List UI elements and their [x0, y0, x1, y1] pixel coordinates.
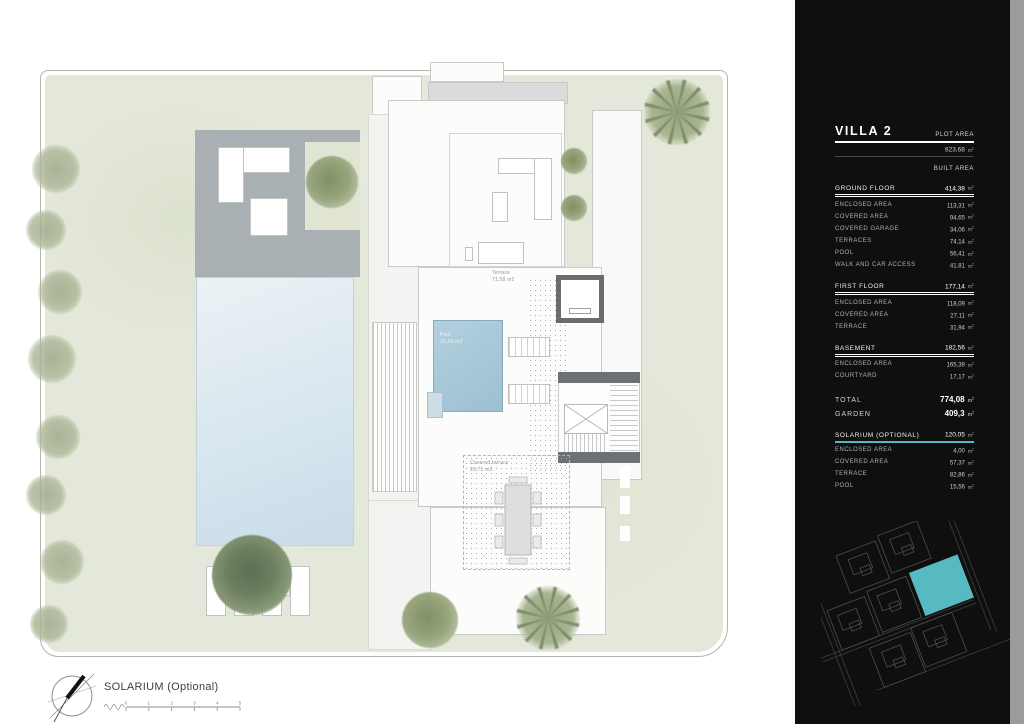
- row-value: 165,39m2: [947, 361, 974, 369]
- row-label: COVERED AREA: [835, 312, 888, 320]
- row-label: COVERED AREA: [835, 214, 888, 222]
- row-label: ENCLOSED AREA: [835, 447, 892, 455]
- scale-tick: 1: [148, 701, 151, 706]
- site-plan: Terrace 71,58 m2 Pool 15,56 m2: [40, 70, 728, 657]
- stair-treads: [610, 385, 638, 451]
- scale-tick: 3: [193, 701, 196, 706]
- shrub-icon: [30, 605, 68, 643]
- row-value: 41,81m2: [950, 262, 974, 270]
- row-label: COVERED GARAGE: [835, 226, 899, 234]
- ground-pool: [196, 277, 354, 546]
- pergola-label-title: Covered terrace: [470, 460, 509, 467]
- row-value: 56,41m2: [950, 250, 974, 258]
- pool-steps: [427, 392, 443, 418]
- area-row: ENCLOSED AREA4,00m2: [835, 447, 974, 455]
- garden-value: 409,3m2: [945, 409, 974, 418]
- section-value: 120,05m2: [945, 431, 974, 439]
- tree-icon: [561, 148, 587, 174]
- section-value: 177,14m2: [945, 283, 974, 291]
- scale-tick: 4: [216, 701, 219, 706]
- row-label: WALK AND CAR ACCESS: [835, 262, 916, 270]
- row-label: TERRACE: [835, 324, 867, 332]
- terrace-label-title: Terrace: [492, 270, 514, 277]
- page: Terrace 71,58 m2 Pool 15,56 m2: [0, 0, 1024, 724]
- terrace-label-area: 71,58 m2: [492, 277, 514, 284]
- villa-title: VILLA 2: [835, 124, 892, 138]
- tree-icon: [212, 535, 292, 615]
- scale-tick: 2: [170, 701, 173, 706]
- shrub-icon: [28, 335, 76, 383]
- pool-area-label: Pool 15,56 m2: [440, 332, 462, 346]
- sofa: [534, 158, 552, 220]
- row-value: 94,65m2: [950, 214, 974, 222]
- stair-void: [564, 404, 608, 434]
- area-row: COVERED AREA57,37m2: [835, 459, 974, 467]
- row-label: ENCLOSED AREA: [835, 300, 892, 308]
- section-first-floor: FIRST FLOOR 177,14m2 ENCLOSED AREA118,09…: [835, 283, 974, 332]
- info-panel: VILLA 2 PLOT AREA 823,68m2 BUILT AREA GR…: [795, 0, 1010, 724]
- shrub-icon: [26, 475, 66, 515]
- row-label: TERRACES: [835, 238, 872, 246]
- section-solarium: SOLARIUM (OPTIONAL) 120,05m2 ENCLOSED AR…: [835, 431, 974, 491]
- scale-tick: 5: [239, 701, 242, 706]
- sunbed: [508, 384, 550, 404]
- side-table: [465, 247, 473, 261]
- area-row: TERRACES74,14m2: [835, 238, 974, 246]
- row-label: ENCLOSED AREA: [835, 361, 892, 369]
- page-edge-strip: [1010, 0, 1024, 724]
- row-value: 34,06m2: [950, 226, 974, 234]
- garden-label: GARDEN: [835, 411, 871, 418]
- area-row: COURTYARD17,17m2: [835, 373, 974, 381]
- shrub-icon: [26, 210, 66, 250]
- stair-wall: [558, 372, 640, 383]
- pergola-label-area: 29,71 m2: [470, 467, 509, 474]
- louvre-deck: [372, 322, 417, 492]
- totals: TOTAL 774,08m2 GARDEN 409,3m2: [835, 395, 974, 418]
- area-row: ENCLOSED AREA113,31m2: [835, 202, 974, 210]
- total-value: 774,08m2: [940, 395, 974, 404]
- palm-tree-icon: [516, 586, 580, 650]
- row-value: 17,17m2: [950, 373, 974, 381]
- path-marker: [620, 496, 630, 514]
- area-row: WALK AND CAR ACCESS41,81m2: [835, 262, 974, 270]
- stair-treads: [564, 434, 608, 452]
- section-basement: BASEMENT 182,56m2 ENCLOSED AREA165,39m2 …: [835, 344, 974, 381]
- pool-label-title: Pool: [440, 332, 462, 339]
- area-row: ENCLOSED AREA165,39m2: [835, 361, 974, 369]
- garden-row: GARDEN 409,3m2: [835, 409, 974, 418]
- row-label: POOL: [835, 250, 854, 258]
- row-value: 31,94m2: [950, 324, 974, 332]
- elevator-cab: [569, 308, 591, 314]
- area-row: ENCLOSED AREA118,09m2: [835, 300, 974, 308]
- scale-bar: 0 1 2 3 4 5: [102, 698, 244, 714]
- row-value: 118,09m2: [947, 300, 974, 308]
- row-label: COURTYARD: [835, 373, 877, 381]
- row-label: POOL: [835, 483, 854, 491]
- section-name: GROUND FLOOR: [835, 185, 895, 192]
- area-row: COVERED AREA27,11m2: [835, 312, 974, 320]
- row-value: 15,56m2: [950, 483, 974, 491]
- palm-tree-icon: [644, 79, 710, 145]
- area-row: COVERED GARAGE34,06m2: [835, 226, 974, 234]
- area-row: POOL56,41m2: [835, 250, 974, 258]
- shrub-icon: [32, 145, 80, 193]
- total-row: TOTAL 774,08m2: [835, 395, 974, 404]
- row-value: 74,14m2: [950, 238, 974, 246]
- row-label: ENCLOSED AREA: [835, 202, 892, 210]
- row-value: 82,86m2: [950, 471, 974, 479]
- void-cross-icon: [565, 405, 607, 433]
- scale-tick: 0: [125, 701, 128, 706]
- row-value: 4,00m2: [953, 447, 974, 455]
- section-value: 182,56m2: [945, 344, 974, 352]
- tree-icon: [402, 592, 458, 648]
- pergola-area-label: Covered terrace 29,71 m2: [470, 460, 509, 474]
- total-label: TOTAL: [835, 397, 862, 404]
- row-label: COVERED AREA: [835, 459, 888, 467]
- section-name: SOLARIUM (OPTIONAL): [835, 432, 919, 439]
- tree-icon: [306, 156, 358, 208]
- area-row: COVERED AREA94,65m2: [835, 214, 974, 222]
- dining-table-icon: [492, 476, 544, 566]
- elevator-shaft: [556, 275, 604, 323]
- outdoor-ottoman: [250, 198, 288, 236]
- roof-outline: [430, 62, 504, 82]
- section-ground-floor: GROUND FLOOR 414,38m2 ENCLOSED AREA113,3…: [835, 185, 974, 270]
- tree-icon: [561, 195, 587, 221]
- coffee-table: [492, 192, 508, 222]
- shrub-icon: [36, 415, 80, 459]
- drawing-title: SOLARIUM (Optional): [104, 681, 219, 693]
- compass-icon: [46, 672, 98, 724]
- outdoor-sofa: [218, 147, 244, 203]
- sunbed: [508, 337, 550, 357]
- area-row: TERRACE31,94m2: [835, 324, 974, 332]
- area-row: TERRACE82,86m2: [835, 471, 974, 479]
- shrub-icon: [38, 270, 82, 314]
- section-value: 414,38m2: [945, 185, 974, 193]
- pool-label-area: 15,56 m2: [440, 339, 462, 346]
- built-area-label: BUILT AREA: [835, 166, 974, 172]
- section-name: FIRST FLOOR: [835, 283, 884, 290]
- plot-area-value: 823,68m2: [835, 143, 974, 157]
- highlighted-plot: [909, 555, 974, 617]
- row-value: 113,31m2: [947, 202, 974, 210]
- stair-wall: [558, 452, 640, 463]
- path-marker: [620, 466, 630, 488]
- section-name: BASEMENT: [835, 345, 876, 352]
- terrace-area-label: Terrace 71,58 m2: [492, 270, 514, 284]
- plot-area-label: PLOT AREA: [935, 132, 974, 138]
- area-row: POOL15,56m2: [835, 483, 974, 491]
- path-marker: [620, 526, 630, 541]
- row-label: TERRACE: [835, 471, 867, 479]
- bench: [478, 242, 524, 264]
- row-value: 27,11m2: [950, 312, 974, 320]
- lounger: [290, 566, 310, 616]
- shrub-icon: [40, 540, 84, 584]
- row-value: 57,37m2: [950, 459, 974, 467]
- location-minimap: [821, 521, 1011, 706]
